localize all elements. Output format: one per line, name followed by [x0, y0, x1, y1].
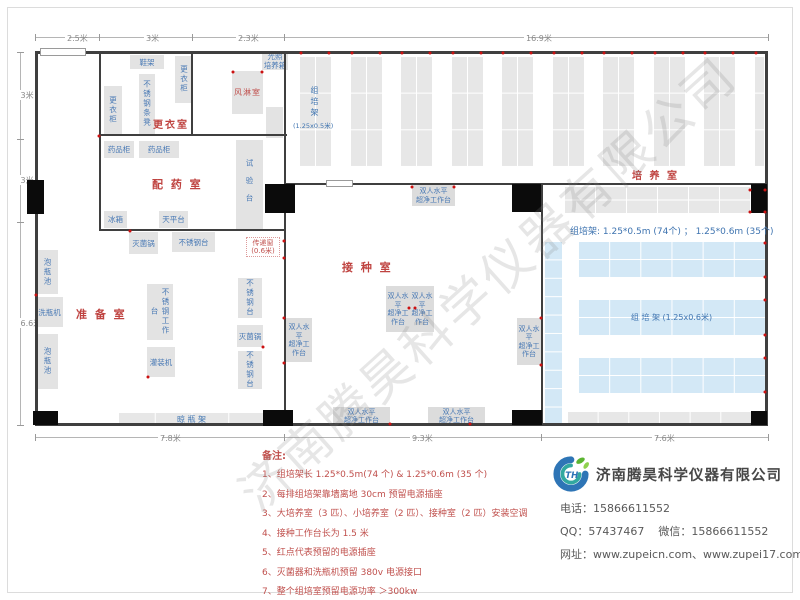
clean-bench-label: 双人水平 超净工作台 [517, 325, 541, 359]
door [265, 184, 295, 213]
wall [35, 51, 38, 426]
clean-bench: 双人水平 超净工作台 [286, 318, 312, 362]
wall [35, 423, 768, 426]
wechat-label: 微信： [658, 525, 691, 538]
power-outlet-dot [378, 52, 381, 55]
power-outlet-dot [732, 52, 735, 55]
furniture-soaking-pool-1: 泡瓶池 [37, 250, 58, 294]
dimension-tick [768, 34, 769, 41]
rack-blue-2: 组 培 架 (1.25x0.6米) [578, 299, 765, 335]
door [27, 180, 44, 214]
culture-rack-column [400, 56, 432, 166]
clean-bench-label: 双人水平 超净工作台 [386, 292, 410, 326]
dimension-tick [35, 34, 36, 41]
furniture-sterilizer-right: 灭菌锅 [237, 325, 263, 347]
culture-rack-column [451, 56, 483, 166]
power-outlet-dot [147, 376, 150, 379]
power-outlet-dot [283, 240, 286, 243]
room-dressing: 更衣室 [153, 116, 213, 130]
power-outlet-dot [232, 71, 235, 74]
rack-blue-2-label: 组 培 架 (1.25x0.6米) [631, 312, 712, 323]
dimension-line [20, 52, 21, 425]
dimension-label: 3米 [19, 175, 23, 185]
culture-rack-column [602, 56, 634, 166]
power-outlet-dot [631, 52, 634, 55]
power-outlet-dot [653, 52, 656, 55]
power-outlet-dot [414, 307, 417, 310]
notes-section: 备注: 1、组培架长 1.25*0.5m(74 个) & 1.25*0.6m (… [262, 447, 562, 600]
power-outlet-dot [764, 334, 767, 337]
dimension-tick [99, 34, 100, 41]
furniture-wardrobe-left: 更衣柜 [104, 86, 122, 135]
furniture-air-shower-room: 风淋室 [232, 71, 263, 114]
furniture-bottle-washer: 洗瓶机 [36, 297, 63, 327]
door [512, 184, 541, 212]
power-outlet-dot [764, 391, 767, 394]
dimension-tick [35, 434, 36, 441]
web-label: 网址： [560, 548, 593, 561]
web-urls: www.zupeicn.com、www.zupei17.com [593, 548, 800, 561]
power-outlet-dot [479, 52, 482, 55]
dimension-tick [284, 34, 285, 41]
dimension-label: 2.3米 [236, 33, 240, 43]
note-item: 3、大培养室（3 匹）、小培养室（2 匹）、接种室（2 匹）安装空调 [262, 506, 562, 519]
clean-bench: 双人水平 超净工作台 [386, 286, 410, 332]
power-outlet-dot [328, 52, 331, 55]
power-outlet-dot [764, 211, 767, 214]
power-outlet-dot [552, 52, 555, 55]
power-outlet-dot [261, 71, 264, 74]
note-item: 1、组培架长 1.25*0.5m(74 个) & 1.25*0.6m (35 个… [262, 467, 562, 480]
culture-rack-column [754, 56, 765, 166]
company-section: TH 济南腾昊科学仪器有限公司 电话：15866611552 QQ：574374… [552, 455, 792, 562]
note-item: 2、每排组培架靠墙离地 30cm 预留电源插座 [262, 487, 562, 500]
furniture-sterilizer-top: 灭菌锅 [129, 232, 158, 254]
power-outlet-dot [749, 189, 752, 192]
power-outlet-dot [401, 52, 404, 55]
dimension-label: 3米 [19, 90, 23, 100]
power-outlet-dot [408, 307, 411, 310]
power-outlet-dot [580, 52, 583, 55]
company-name: 济南腾昊科学仪器有限公司 [596, 464, 782, 485]
power-outlet-dot [283, 257, 286, 260]
wall [765, 51, 768, 426]
culture-rack-column [653, 56, 685, 166]
dimension-tick [17, 222, 24, 223]
culture-rack-column [350, 56, 382, 166]
rack-blue-1 [578, 241, 765, 277]
power-outlet-dot [283, 362, 286, 365]
door [751, 411, 767, 425]
furniture-medicine-cabinet-1: 药品柜 [104, 141, 134, 158]
dimension-label: 7.8米 [158, 433, 162, 443]
power-outlet-dot [300, 52, 303, 55]
power-outlet-dot [389, 423, 392, 426]
floorplan-page: 鞋架更衣柜不锈钢条凳更衣柜风淋室光照 培养箱药品柜药品柜试验台冰箱天平台灭菌锅不… [0, 0, 800, 600]
phone-number: 15866611552 [593, 502, 670, 515]
qq-label: QQ： [560, 525, 588, 538]
room-preparation: 准 备 室 [76, 306, 136, 320]
dimension-tick [284, 434, 285, 441]
power-outlet-dot [764, 357, 767, 360]
wall [541, 183, 543, 425]
dimension-label: 9.3米 [410, 433, 414, 443]
culture-rack-column [703, 56, 735, 166]
power-outlet-dot [98, 135, 101, 138]
furniture-stainless-table-top: 不锈钢台 [172, 232, 215, 252]
dimension-label: 7.6米 [652, 433, 656, 443]
door [263, 410, 293, 426]
rack-count-note: 组培架: 1.25*0.5m (74个) ； 1.25*0.6m (35个) [570, 224, 770, 236]
door [512, 410, 542, 425]
power-outlet-dot [262, 346, 265, 349]
wechat-number: 15866611552 [691, 525, 768, 538]
culture-rack-column [501, 56, 533, 166]
door [33, 411, 58, 425]
power-outlet-dot [530, 52, 533, 55]
window [326, 180, 353, 187]
dimension-label: 2.5米 [65, 33, 69, 43]
clean-bench-label: 双人水平 超净工作台 [416, 187, 451, 204]
clean-bench: 双人水平 超净工作台 [412, 185, 455, 206]
power-outlet-dot [411, 186, 414, 189]
svg-text:TH: TH [565, 471, 578, 481]
power-outlet-dot [704, 52, 707, 55]
clean-bench-label: 双人水平 超净工作台 [286, 323, 312, 357]
note-item: 6、灭菌器和洗瓶机预留 380v 电源接口 [262, 565, 562, 578]
furniture-balance-table: 天平台 [159, 211, 188, 228]
furniture-stainless-table-r2: 不锈钢台 [238, 351, 262, 389]
company-web-line: 网址：www.zupeicn.com、www.zupei17.com [560, 546, 792, 562]
furniture-test-bench: 试验台 [236, 140, 263, 231]
dimension-tick [17, 425, 24, 426]
furniture-soaking-pool-2: 泡瓶池 [37, 334, 58, 389]
wall [99, 134, 287, 136]
clean-bench-label: 双人水平 超净工作台 [344, 408, 379, 425]
clean-bench: 双人水平 超净工作台 [517, 318, 541, 365]
power-outlet-dot [681, 52, 684, 55]
notes-title: 备注: [262, 447, 562, 462]
dimension-tick [17, 139, 24, 140]
power-outlet-dot [502, 52, 505, 55]
power-outlet-dot [35, 294, 38, 297]
wall [99, 51, 101, 231]
rack-top-right-gray [564, 186, 750, 213]
power-outlet-dot [540, 317, 543, 320]
window [40, 48, 86, 56]
note-item: 7、整个组培室预留电源功率 ＞300kw [262, 584, 562, 597]
dimension-tick [768, 434, 769, 441]
power-outlet-dot [764, 276, 767, 279]
power-outlet-dot [283, 317, 286, 320]
rack-size-label: (1.25x0.5米) [293, 120, 339, 128]
dimension-tick [541, 434, 542, 441]
dimension-tick [192, 34, 193, 41]
dimension-label: 3米 [144, 33, 148, 43]
dimension-label: 16.9米 [524, 33, 528, 43]
dimension-tick [17, 52, 24, 53]
furniture-medicine-cabinet-2: 药品柜 [139, 141, 179, 158]
power-outlet-dot [764, 299, 767, 302]
power-outlet-dot [764, 189, 767, 192]
power-outlet-dot [451, 52, 454, 55]
transfer-window-label: 传递窗 (0.6米) [246, 237, 280, 257]
power-outlet-dot [453, 186, 456, 189]
power-outlet-dot [429, 52, 432, 55]
power-outlet-dot [350, 52, 353, 55]
power-outlet-dot [603, 52, 606, 55]
furniture-stainless-worktable: 不锈钢工作台 [147, 284, 173, 340]
phone-label: 电话： [560, 502, 593, 515]
company-phone-line: 电话：15866611552 [560, 500, 792, 516]
room-culture: 培 养 室 [632, 167, 692, 181]
furniture-filling-machine: 灌装机 [147, 347, 175, 377]
furniture-stainless-table-r1: 不锈钢台 [238, 278, 262, 318]
qq-number: 57437467 [588, 525, 644, 538]
furniture-shoe-rack: 鞋架 [130, 55, 164, 69]
dimension-label: 6.6米 [19, 318, 23, 328]
power-outlet-dot [129, 230, 132, 233]
wall [99, 229, 286, 231]
rack-blue-3 [578, 357, 765, 393]
power-outlet-dot [540, 364, 543, 367]
room-pharmacy: 配 药 室 [152, 176, 212, 190]
power-outlet-dot [749, 211, 752, 214]
note-item: 4、接种工作台长为 1.5 米 [262, 526, 562, 539]
company-logo: TH [552, 455, 590, 493]
note-item: 5、红点代表预留的电源插座 [262, 545, 562, 558]
culture-rack-column [552, 56, 584, 166]
power-outlet-dot [754, 52, 757, 55]
room-inoculation: 接 种 室 [342, 259, 402, 273]
rack-blue-vertical [544, 241, 562, 425]
power-outlet-dot [764, 242, 767, 245]
company-qq-wechat-line: QQ：57437467微信：15866611552 [560, 523, 792, 539]
wall [284, 51, 286, 425]
furniture-fridge: 冰箱 [104, 211, 127, 228]
power-outlet-dot [469, 423, 472, 426]
